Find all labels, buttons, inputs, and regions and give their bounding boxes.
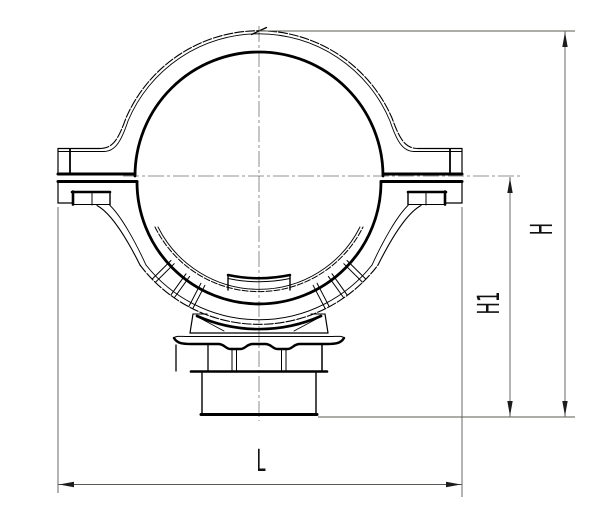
band-transition-outer xyxy=(97,206,140,266)
saddle-clamp-drawing: H H1 L xyxy=(0,0,600,511)
upper-right-flange xyxy=(383,149,462,175)
arrow-down xyxy=(507,401,512,416)
band-transition-outer xyxy=(378,206,421,266)
base-right-side xyxy=(325,314,328,333)
dimension-H1: H1 xyxy=(472,177,513,417)
arrow-up xyxy=(507,178,512,193)
technical-drawing-canvas: H H1 L xyxy=(0,0,600,511)
arrow-left xyxy=(59,482,74,487)
base-left-side xyxy=(190,314,193,333)
dimension-L: L xyxy=(58,207,462,497)
lower-left-flange xyxy=(58,181,146,265)
arrow-right xyxy=(446,482,461,487)
dimension-label-H: H xyxy=(525,223,560,235)
dimension-H: H xyxy=(259,31,575,417)
arrow-up xyxy=(562,32,567,47)
lower-right-flange xyxy=(372,181,462,265)
upper-left-flange xyxy=(58,149,135,175)
dimension-label-H1: H1 xyxy=(472,292,507,315)
arrow-down xyxy=(562,401,567,416)
dimension-label-L: L xyxy=(256,444,266,479)
centerlines xyxy=(123,26,523,421)
